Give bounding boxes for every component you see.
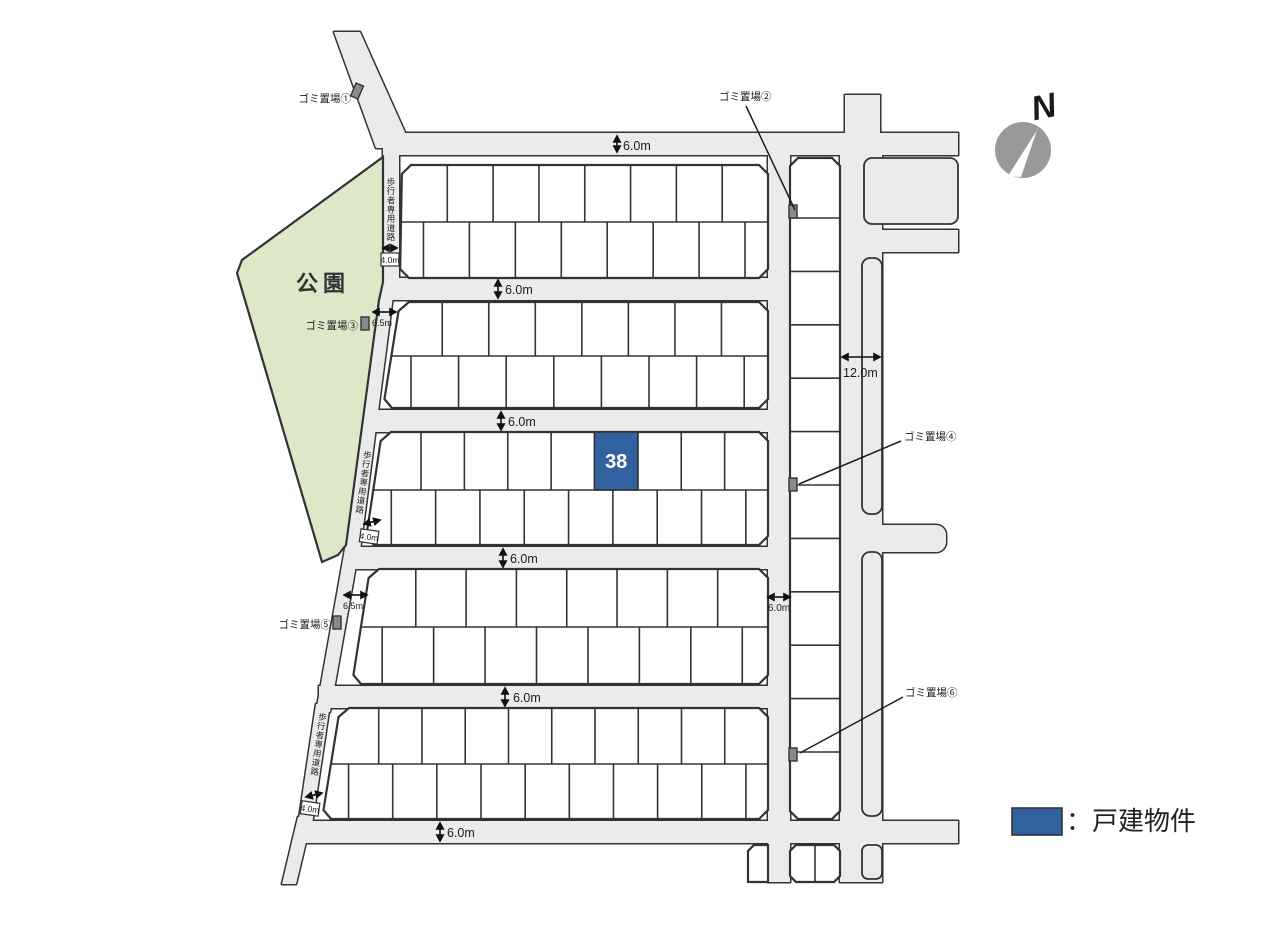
compass: N	[995, 86, 1061, 178]
bottom-lots	[748, 845, 840, 882]
road-width-label: 6.5m	[343, 601, 363, 611]
block-5	[323, 708, 768, 819]
garbage-icon-5	[333, 616, 341, 629]
garbage-label-5: ゴミ置場⑤	[279, 618, 332, 631]
road-width-label: 6.0m	[623, 139, 651, 153]
garbage-label-4: ゴミ置場④	[904, 430, 957, 443]
road-width-label: 12.0m	[843, 366, 878, 380]
block-1	[400, 165, 768, 278]
road-width-label: 6.0m	[447, 826, 475, 840]
svg-text:歩行者専用道路: 歩行者専用道路	[387, 177, 396, 242]
road-width-label: 4.0m	[381, 255, 400, 265]
garbage-icon-4	[789, 478, 797, 491]
site-plan-map: 公園 38 6.0m 6.0m 6.0m 6.0m 6.0m 6.0m 6.0m…	[0, 0, 1280, 924]
road-h5	[319, 686, 790, 708]
road-diagonal-bottom	[282, 817, 312, 884]
road-east-2	[852, 525, 946, 552]
road-width-label: 6.0m	[510, 552, 538, 566]
road-width-label: 6.0m	[505, 283, 533, 297]
garbage-icon-3	[361, 317, 369, 330]
block-3: 38	[366, 432, 768, 545]
road-h2	[378, 278, 790, 300]
road-diagonal-top	[334, 32, 412, 148]
garbage-icon-6	[789, 748, 797, 761]
road-width-label: 6.0m	[513, 691, 541, 705]
road-v2-stub	[845, 95, 880, 140]
road-h3	[374, 410, 790, 432]
garbage-label-3: ゴミ置場③	[306, 319, 359, 332]
legend-swatch	[1012, 808, 1062, 835]
garbage-label-6: ゴミ置場⑥	[905, 686, 958, 699]
dimension-arrow	[344, 592, 367, 598]
legend: ：戸建物件	[1012, 806, 1196, 836]
featured-lot-number: 38	[605, 451, 627, 473]
road-width-label: 6.5m	[372, 318, 392, 328]
road-width-label: 6.0m	[508, 415, 536, 429]
road-h4	[346, 547, 790, 569]
lot-blocks: 38	[323, 158, 840, 819]
road-width-label: 6.0m	[768, 603, 790, 614]
block-2	[384, 302, 768, 408]
garbage-label-2: ゴミ置場②	[719, 90, 772, 103]
pedestrian-width-tag-2: 4.0m	[359, 529, 380, 545]
garbage-label-1: ゴミ置場①	[299, 92, 352, 105]
north-label: N	[1028, 86, 1061, 129]
pedestrian-road-label-1: 歩行者専用道路	[387, 177, 396, 242]
block-4	[353, 569, 768, 684]
pedestrian-width-tag-1: 4.0m	[381, 253, 400, 266]
pedestrian-width-tag-3: 4.0m	[300, 801, 321, 817]
road-east-1	[852, 230, 958, 252]
legend-label: ：戸建物件	[1066, 806, 1196, 836]
park-label: 公園	[296, 271, 350, 296]
road-v1	[768, 140, 790, 882]
